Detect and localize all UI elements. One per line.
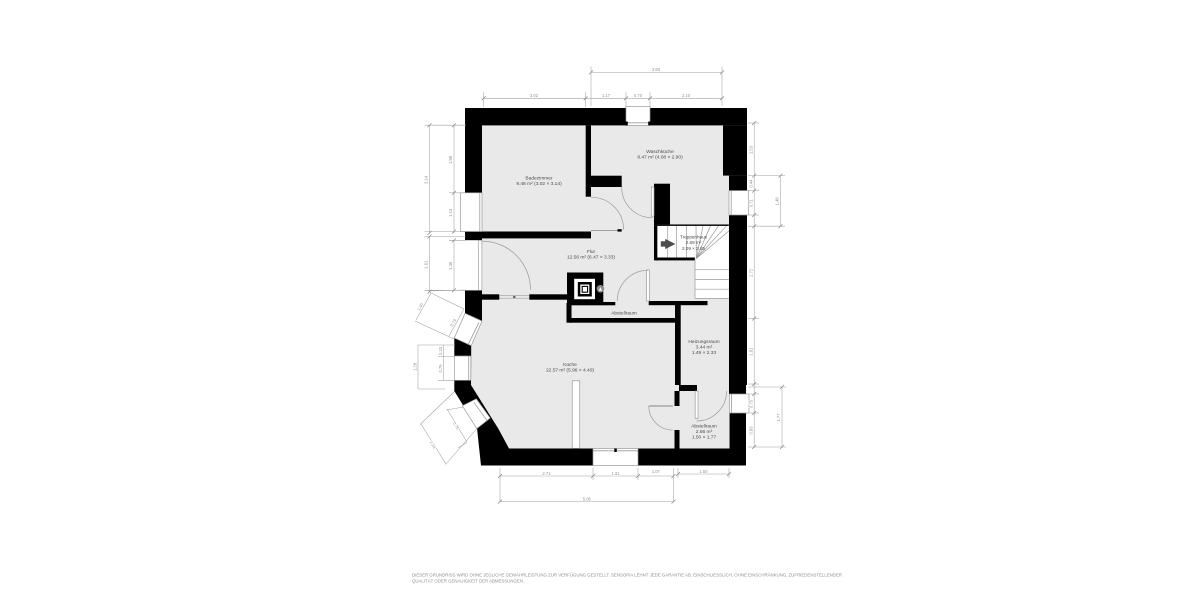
svg-text:QUALITÄT ODER GENAUIGKEIT DER: QUALITÄT ODER GENAUIGKEIT DER ABMESSUNGE… — [412, 579, 524, 584]
svg-text:1.50: 1.50 — [700, 469, 709, 474]
svg-text:0.93: 0.93 — [748, 426, 753, 435]
svg-text:9.48 m² (3.02 × 3.14): 9.48 m² (3.02 × 3.14) — [516, 181, 562, 187]
svg-text:0.71: 0.71 — [748, 199, 753, 208]
svg-text:1.31: 1.31 — [612, 471, 621, 476]
svg-text:1.81: 1.81 — [748, 347, 753, 356]
svg-text:1.07: 1.07 — [652, 469, 661, 474]
svg-text:8.47 m² (4.08 × 2.90): 8.47 m² (4.08 × 2.90) — [637, 155, 683, 161]
svg-text:2.72: 2.72 — [748, 268, 753, 277]
svg-text:0.75: 0.75 — [748, 399, 753, 408]
svg-text:Küche: Küche — [563, 362, 577, 368]
svg-text:0.70: 0.70 — [634, 93, 643, 98]
svg-text:2.10: 2.10 — [682, 93, 691, 98]
svg-text:Waschküche: Waschküche — [646, 149, 674, 155]
svg-text:Abstellraum: Abstellraum — [691, 423, 717, 429]
svg-text:5.06: 5.06 — [583, 497, 592, 502]
svg-text:2.66 m²: 2.66 m² — [696, 429, 713, 435]
svg-text:1.49 × 2.33: 1.49 × 2.33 — [692, 350, 717, 356]
svg-text:3.44 m²: 3.44 m² — [696, 344, 713, 350]
svg-text:Badezimmer: Badezimmer — [525, 175, 553, 181]
svg-text:2.89 m²: 2.89 m² — [686, 240, 702, 245]
svg-text:22.57 m² (5.96 × 4.40): 22.57 m² (5.96 × 4.40) — [546, 367, 594, 373]
svg-text:2.09 × 2.85: 2.09 × 2.85 — [682, 246, 706, 251]
svg-text:Abstellraum: Abstellraum — [611, 310, 637, 316]
svg-text:12.56 m² (6.47 × 3.33): 12.56 m² (6.47 × 3.33) — [567, 254, 615, 260]
svg-text:1.17: 1.17 — [602, 93, 611, 98]
svg-text:1.61: 1.61 — [424, 260, 429, 269]
svg-text:1.13: 1.13 — [448, 208, 453, 217]
svg-text:0.44: 0.44 — [748, 179, 753, 188]
svg-text:1.50 × 1.77: 1.50 × 1.77 — [692, 435, 717, 441]
svg-text:Heizungsraum: Heizungsraum — [688, 339, 719, 345]
svg-text:1.48: 1.48 — [775, 197, 780, 206]
svg-text:1.28: 1.28 — [412, 362, 417, 371]
svg-text:2.71: 2.71 — [543, 471, 552, 476]
svg-text:Flur: Flur — [587, 249, 596, 255]
svg-text:0.33: 0.33 — [438, 346, 443, 355]
svg-text:3.02: 3.02 — [530, 93, 539, 98]
svg-text:Treppenhaus: Treppenhaus — [680, 235, 708, 240]
svg-text:3.14: 3.14 — [424, 175, 429, 184]
svg-text:1.53: 1.53 — [748, 145, 753, 154]
svg-text:DIESER GRUNDRISS WIRD OHNE JEG: DIESER GRUNDRISS WIRD OHNE JEGLICHE GEWÄ… — [412, 573, 842, 578]
svg-text:1.46: 1.46 — [448, 261, 453, 270]
svg-text:0.75: 0.75 — [438, 364, 443, 373]
svg-text:3.83: 3.83 — [652, 67, 661, 72]
svg-text:1.98: 1.98 — [448, 155, 453, 164]
svg-text:1.77: 1.77 — [776, 413, 781, 422]
